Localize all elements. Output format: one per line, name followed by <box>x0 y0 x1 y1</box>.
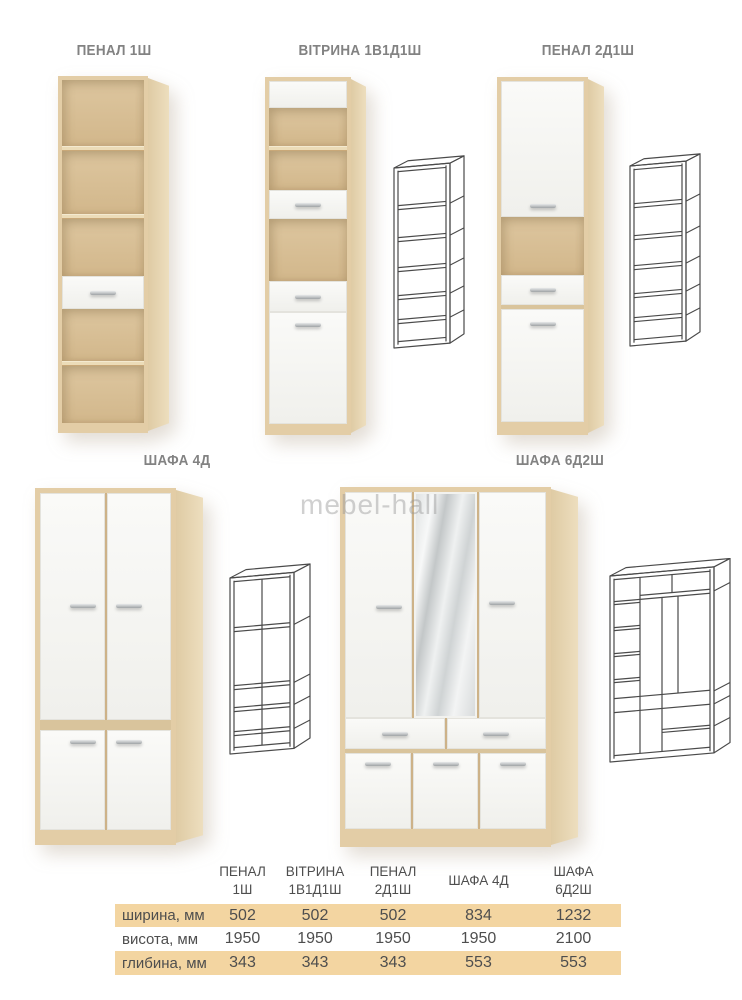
door-handle <box>500 762 526 766</box>
row-label: висота, мм <box>115 931 210 948</box>
product-image-penal-1sh <box>58 76 169 433</box>
door-front <box>345 492 412 718</box>
upper-doors-row <box>40 493 171 720</box>
table-cell: 2100 <box>526 930 621 948</box>
mirror-door <box>414 492 477 718</box>
wireframe-diagram-shafa-6d2sh <box>602 558 740 770</box>
drawer-handle <box>530 288 556 292</box>
door-front <box>107 730 172 830</box>
open-shelf-compartment <box>62 309 144 361</box>
table-cell: 343 <box>355 954 431 972</box>
row-label: ширина, мм <box>115 907 210 924</box>
table-cell: 553 <box>431 954 526 972</box>
table-header-penal-2d1sh: ПЕНАЛ 2Д1Ш <box>355 857 431 904</box>
door-front <box>501 81 584 217</box>
open-shelf-compartment <box>62 219 144 276</box>
table-header-empty <box>115 857 210 904</box>
cabinet-side-panel <box>588 79 604 433</box>
table-header-row: ПЕНАЛ 1Ш ВІТРИНА 1В1Д1Ш ПЕНАЛ 2Д1Ш ШАФА … <box>115 857 621 904</box>
open-shelf-compartment <box>62 151 144 214</box>
drawer-handle <box>483 732 509 736</box>
wardrobe-side-panel <box>551 489 578 845</box>
wardrobe-side-panel <box>176 490 203 843</box>
door-front <box>269 312 347 424</box>
table-cell: 343 <box>275 954 355 972</box>
table-cell: 343 <box>210 954 275 972</box>
header-line: ПЕНАЛ <box>370 863 417 881</box>
vitrine-top-panel <box>269 81 347 108</box>
header-line: ВІТРИНА <box>286 863 344 881</box>
open-niche <box>269 219 347 281</box>
drawer-front <box>269 190 347 219</box>
upper-doors-row <box>345 492 546 718</box>
open-shelf-compartment <box>269 151 347 190</box>
table-header-shafa-4d: ШАФА 4Д <box>431 857 526 904</box>
cabinet-front <box>497 77 588 435</box>
table-row-depth: глибина, мм 343 343 343 553 553 <box>115 951 621 975</box>
wireframe-diagram-penal <box>620 150 710 357</box>
door-handle <box>365 762 391 766</box>
table-cell: 502 <box>355 907 431 925</box>
table-header-vitrina: ВІТРИНА 1В1Д1Ш <box>275 857 355 904</box>
door-handle <box>530 322 556 326</box>
product-label-shafa-4d: ШАФА 4Д <box>101 452 254 469</box>
drawer-handle <box>90 291 116 295</box>
door-front <box>501 309 584 422</box>
table-cell: 553 <box>526 954 621 972</box>
drawer-front <box>447 718 547 749</box>
table-cell: 502 <box>275 907 355 925</box>
product-image-vitrina-1v1d1sh <box>265 77 366 435</box>
table-row-height: висота, мм 1950 1950 1950 1950 2100 <box>115 927 621 951</box>
header-line: ШАФА 4Д <box>448 872 508 890</box>
catalog-page: ПЕНАЛ 1Ш ВІТРИНА 1В1Д1Ш ПЕНАЛ 2Д1Ш <box>0 0 742 1000</box>
lower-doors-row <box>345 753 546 829</box>
cabinet-front <box>265 77 351 435</box>
table-header-penal-1sh: ПЕНАЛ 1Ш <box>210 857 275 904</box>
header-line: 2Д1Ш <box>375 881 412 899</box>
dimensions-table: ПЕНАЛ 1Ш ВІТРИНА 1В1Д1Ш ПЕНАЛ 2Д1Ш ШАФА … <box>115 857 621 975</box>
wireframe-diagram-shafa-4d <box>222 562 314 760</box>
wardrobe-front <box>340 487 551 847</box>
door-front <box>413 753 479 829</box>
wireframe-diagram-vitrina <box>388 152 468 357</box>
door-handle <box>433 762 459 766</box>
drawer-front <box>501 275 584 305</box>
wardrobe-front <box>35 488 176 845</box>
product-label-penal-2d1sh: ПЕНАЛ 2Д1Ш <box>512 42 665 59</box>
door-handle <box>489 601 515 605</box>
header-line: ШАФА <box>554 863 594 881</box>
door-handle <box>70 604 96 608</box>
product-image-shafa-4d <box>35 488 203 845</box>
product-label-vitrina-1v1d1sh: ВІТРИНА 1В1Д1Ш <box>284 42 437 59</box>
header-line: ПЕНАЛ <box>219 863 266 881</box>
door-front <box>345 753 411 829</box>
watermark: mebel-hall <box>300 489 439 521</box>
table-cell: 502 <box>210 907 275 925</box>
product-image-shafa-6d2sh <box>340 487 578 847</box>
door-handle <box>116 604 142 608</box>
wood-divider <box>40 720 171 730</box>
table-header-shafa-6d2sh: ШАФА 6Д2Ш <box>526 857 621 904</box>
table-cell: 834 <box>431 907 526 925</box>
row-label: глибина, мм <box>115 955 210 972</box>
header-line: 1Ш <box>233 881 253 899</box>
door-handle <box>295 323 321 327</box>
cabinet-side-panel <box>148 78 169 431</box>
door-front <box>40 493 105 720</box>
door-front <box>480 753 546 829</box>
drawers-row <box>345 718 546 749</box>
door-front <box>40 730 105 830</box>
lower-doors-row <box>40 730 171 830</box>
header-line: 6Д2Ш <box>555 881 592 899</box>
drawer-front <box>62 276 144 309</box>
drawer-handle <box>382 732 408 736</box>
open-shelf-compartment <box>62 80 144 146</box>
product-label-penal-1sh: ПЕНАЛ 1Ш <box>38 42 191 59</box>
cabinet-front <box>58 76 148 433</box>
drawer-handle <box>295 203 321 207</box>
door-handle <box>116 740 142 744</box>
table-row-width: ширина, мм 502 502 502 834 1232 <box>115 904 621 927</box>
door-handle <box>376 605 402 609</box>
table-cell: 1950 <box>210 930 275 948</box>
table-cell: 1232 <box>526 907 621 925</box>
door-front <box>479 492 546 718</box>
open-shelf-compartment <box>62 366 144 423</box>
product-label-shafa-6d2sh: ШАФА 6Д2Ш <box>484 452 637 469</box>
table-cell: 1950 <box>431 930 526 948</box>
door-front <box>107 493 172 720</box>
open-shelf-compartment <box>269 108 347 146</box>
product-image-penal-2d1sh <box>497 77 604 435</box>
drawer-handle <box>295 295 321 299</box>
door-handle <box>530 204 556 208</box>
drawer-front <box>345 718 445 749</box>
door-handle <box>70 740 96 744</box>
header-line: 1В1Д1Ш <box>288 881 341 899</box>
table-cell: 1950 <box>355 930 431 948</box>
cabinet-side-panel <box>351 79 366 433</box>
drawer-front <box>269 281 347 312</box>
table-cell: 1950 <box>275 930 355 948</box>
open-niche <box>501 217 584 275</box>
